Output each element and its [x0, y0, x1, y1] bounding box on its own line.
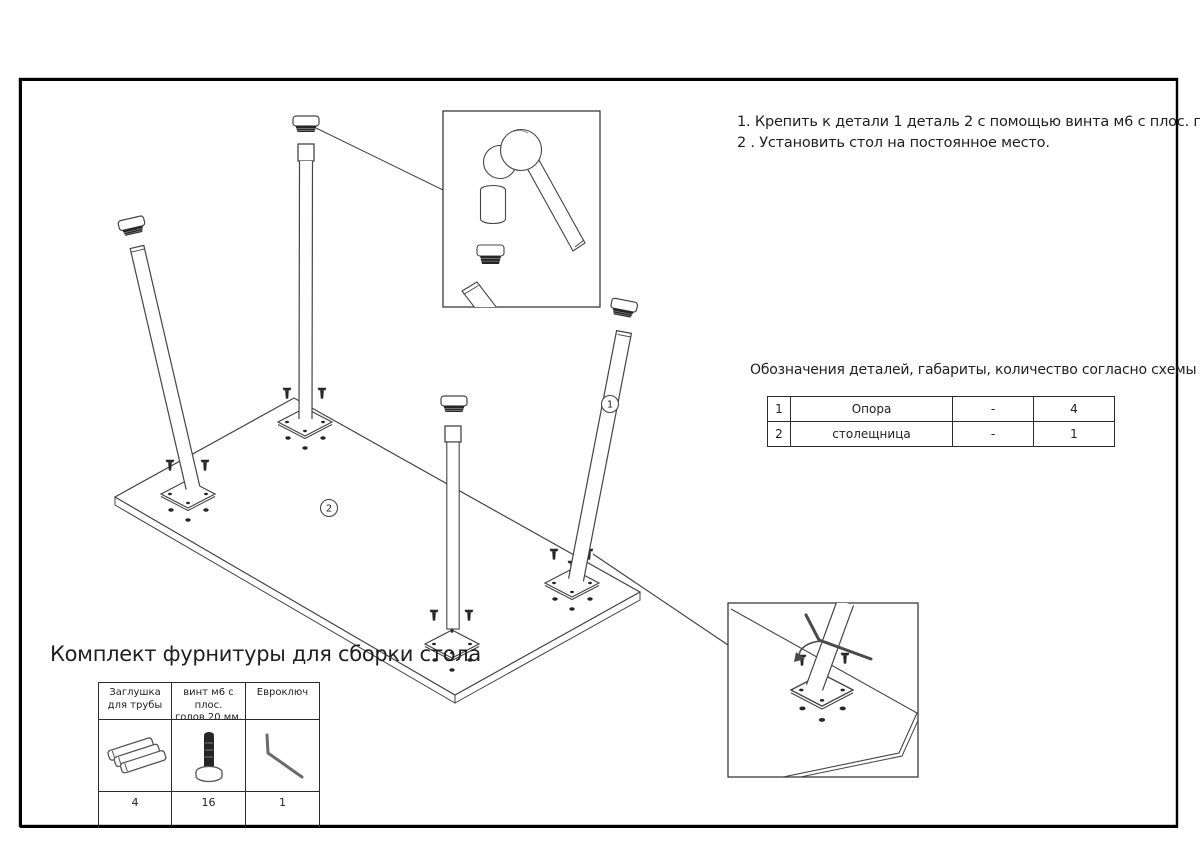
part-quantity: 1	[1034, 422, 1114, 446]
kit-qty-tube-cap: 4	[99, 792, 172, 826]
parts-table-title: Обозначения деталей, габариты, количеств…	[750, 362, 1200, 378]
instruction-step-2: 2 . Установить стол на постоянное место.	[737, 133, 1200, 154]
table-row: 2 столещница - 1	[768, 421, 1114, 446]
part-number: 2	[768, 422, 791, 446]
instruction-step-1: 1. Крепить к детали 1 деталь 2 с помощью…	[737, 112, 1200, 133]
hex-key-icon	[250, 725, 316, 787]
kit-qty-hex-key: 1	[246, 792, 319, 826]
kit-qty-screw: 16	[172, 792, 246, 826]
part-dimensions: -	[953, 422, 1034, 446]
screw-icon	[176, 725, 242, 787]
kit-image-cell	[246, 720, 319, 791]
kit-image-row	[99, 720, 319, 792]
kit-header-row: Заглушка для трубы винт м6 с плос. голов…	[99, 683, 319, 720]
part-dimensions: -	[953, 397, 1034, 421]
kit-title: Комплект фурнитуры для сборки стола	[50, 642, 481, 666]
table-row: 1 Опора - 4	[768, 397, 1114, 421]
part-quantity: 4	[1034, 397, 1114, 421]
kit-quantity-row: 4 16 1	[99, 792, 319, 826]
part-name: столещница	[791, 422, 953, 446]
part-number: 1	[768, 397, 791, 421]
kit-image-cell	[172, 720, 246, 791]
parts-table: 1 Опора - 4 2 столещница - 1	[767, 396, 1115, 447]
kit-header-screw: винт м6 с плос. голов.20 мм.	[172, 683, 246, 719]
tube-cap-icon	[102, 725, 168, 787]
kit-table: Заглушка для трубы винт м6 с плос. голов…	[98, 682, 320, 827]
kit-image-cell	[99, 720, 172, 791]
assembly-drawing-sheet: 1 2	[0, 0, 1200, 848]
kit-header-hex-key: Евроключ	[246, 683, 319, 719]
assembly-instructions: 1. Крепить к детали 1 деталь 2 с помощью…	[737, 112, 1200, 154]
part-name: Опора	[791, 397, 953, 421]
kit-header-tube-cap: Заглушка для трубы	[99, 683, 172, 719]
